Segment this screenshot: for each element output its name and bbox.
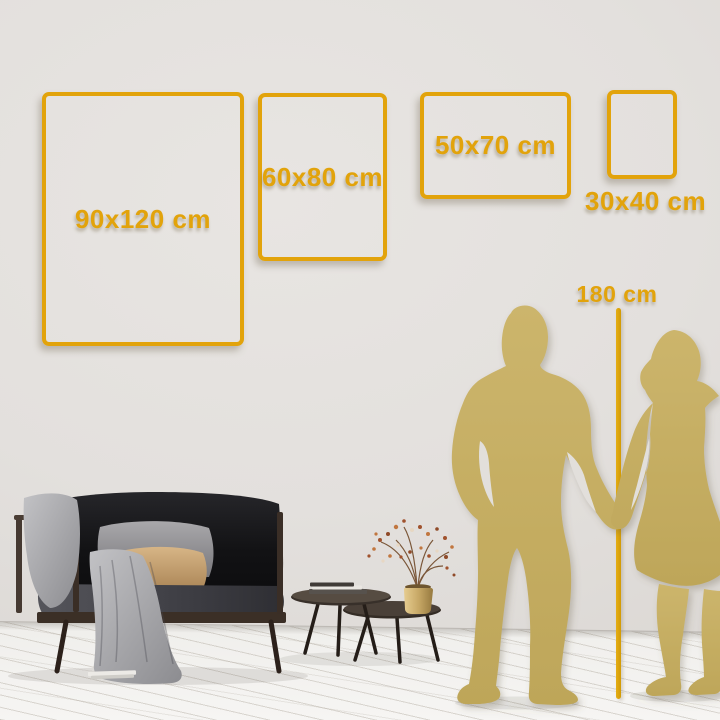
frame-50x70: 50x70 cm	[420, 92, 571, 199]
sofa-wood-post-left-outer	[16, 517, 22, 613]
height-ruler-line	[616, 308, 621, 699]
man-arm-gap-left	[479, 441, 494, 507]
sofa-wood-rail-left-top	[14, 515, 36, 520]
frame-50x70-label: 50x70 cm	[435, 130, 556, 161]
frame-30x40	[607, 90, 677, 179]
blossoms	[367, 519, 455, 576]
woman-arm-gap	[631, 439, 649, 510]
man-arm-gap-right	[567, 452, 596, 512]
brass-vase-with-dried-flowers	[367, 519, 455, 614]
frame-90x120: 90x120 cm	[42, 92, 244, 346]
tan-pillow	[114, 547, 207, 589]
left-table-top	[291, 589, 391, 606]
poster-size-guide-scene: 90x120 cm 60x80 cm 50x70 cm 30x40 cm 180…	[0, 0, 720, 720]
right-table-surface	[344, 601, 440, 616]
vase-rim	[405, 584, 431, 590]
sofa-wood-post-right	[277, 512, 283, 614]
right-table-top	[343, 602, 441, 619]
sofa-back-shell	[32, 492, 283, 611]
books-on-table	[309, 583, 367, 595]
frame-90x120-label: 90x120 cm	[75, 204, 211, 235]
frame-60x80: 60x80 cm	[258, 93, 387, 261]
throw-blanket-arm	[24, 493, 80, 608]
gray-pillow	[98, 521, 214, 579]
vase-body	[404, 588, 433, 614]
frame-30x40-label: 30x40 cm	[585, 186, 703, 217]
sofa-wood-post-left-inner	[73, 520, 79, 612]
branches	[381, 527, 449, 587]
seat-cushion	[38, 584, 284, 613]
left-table-surface	[292, 588, 390, 603]
frame-60x80-label: 60x80 cm	[262, 162, 383, 193]
height-marker-label: 180 cm	[563, 281, 671, 308]
